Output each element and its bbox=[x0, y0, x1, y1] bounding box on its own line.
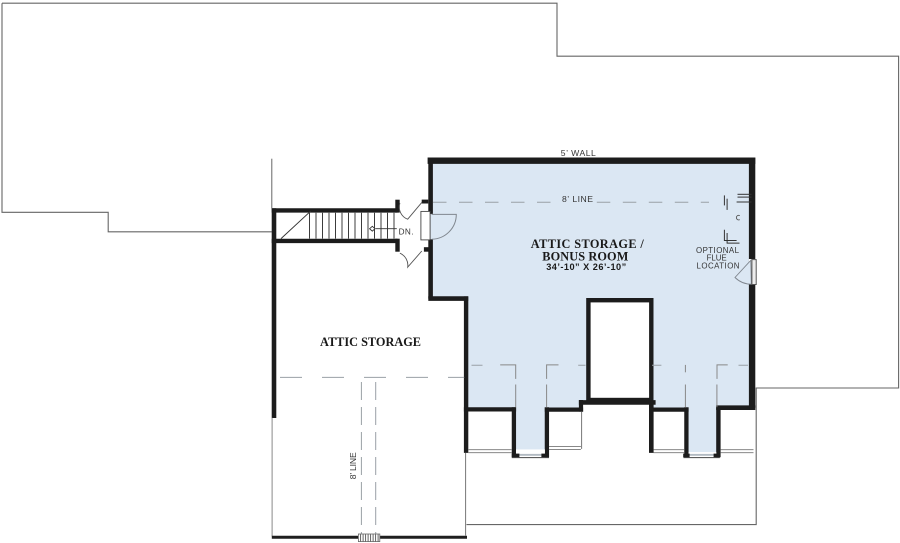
svg-text:ATTIC STORAGE: ATTIC STORAGE bbox=[320, 335, 421, 349]
svg-text:8’ LINE: 8’ LINE bbox=[348, 452, 358, 479]
svg-text:LOCATION: LOCATION bbox=[697, 261, 740, 270]
svg-text:DN.: DN. bbox=[399, 227, 414, 236]
svg-text:5’ WALL: 5’ WALL bbox=[561, 148, 596, 158]
svg-text:8’ LINE: 8’ LINE bbox=[562, 194, 593, 204]
svg-text:34’-10” X 26’-10”: 34’-10” X 26’-10” bbox=[546, 262, 626, 272]
